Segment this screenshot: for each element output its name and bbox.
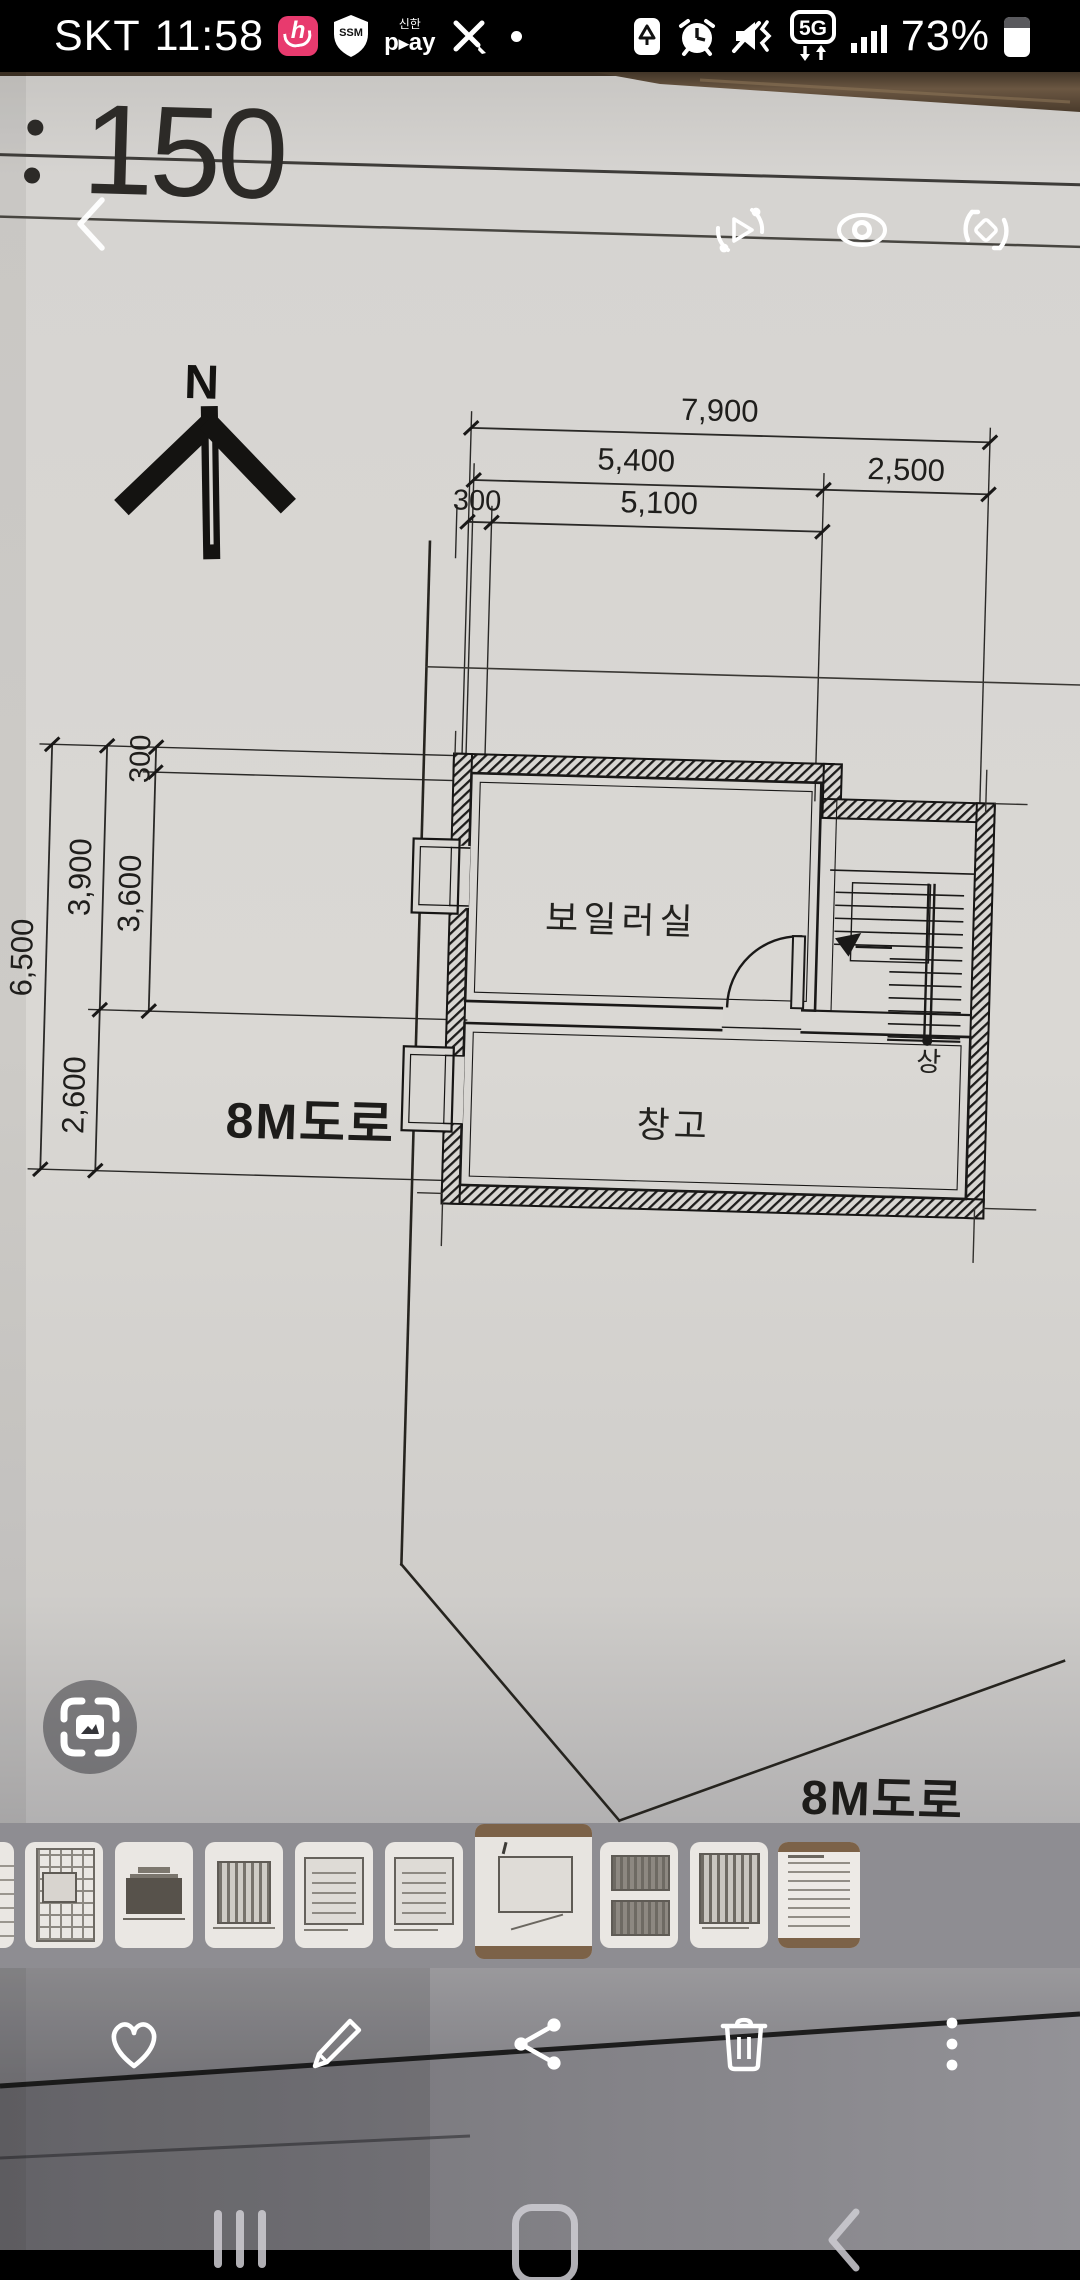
- thumbnail-sections[interactable]: [600, 1842, 678, 1948]
- thumbnail-sliver[interactable]: [0, 1842, 14, 1948]
- dim-300-left-label: 300: [124, 734, 157, 783]
- thumbnail-detail[interactable]: [25, 1842, 103, 1948]
- storage-room-label: 창고: [636, 1104, 711, 1147]
- svg-text:5G: 5G: [799, 17, 827, 40]
- gallery-photo-viewer-screen: 150 N: [0, 0, 1080, 2280]
- road-label-left: 8M도로: [225, 1092, 396, 1153]
- signal-bars-icon: [849, 16, 889, 56]
- dim-5400-label: 5,400: [597, 441, 676, 478]
- dim-5100-label: 5,100: [620, 484, 699, 521]
- window-lower-left: [402, 1046, 465, 1132]
- battery-saver-icon: [631, 14, 663, 58]
- dim-3900-label: 3,900: [61, 838, 98, 917]
- nav-home-button[interactable]: [512, 2204, 578, 2280]
- navigation-bar: [0, 2196, 1080, 2280]
- dim-2500-label: 2,500: [867, 451, 946, 488]
- share-button[interactable]: [508, 2014, 568, 2074]
- scan-image-icon: [52, 1689, 128, 1765]
- show-details-eye-button[interactable]: [834, 202, 890, 258]
- thumbnail-doc[interactable]: [778, 1842, 860, 1948]
- north-label: N: [184, 356, 220, 410]
- dim-7900-label: 7,900: [680, 392, 759, 429]
- action-bar: [0, 2014, 1080, 2084]
- image-scan-lens-button[interactable]: [43, 1680, 137, 1774]
- motion-photo-button[interactable]: [712, 202, 768, 258]
- ssm-shield-icon: SSM: [332, 14, 370, 58]
- window-upper-left: [412, 838, 471, 914]
- dim-2600-label: 2,600: [55, 1056, 92, 1135]
- boiler-room-label: 보일러실: [545, 897, 699, 942]
- notification-app-icon: h: [278, 16, 318, 56]
- road-label-bottom: 8M도로: [800, 1772, 964, 1830]
- nav-recents-button[interactable]: [214, 2210, 266, 2268]
- notification-dot-icon: [511, 31, 522, 42]
- shinhan-play-icon: 신한 p▶ay: [384, 18, 435, 55]
- status-bar: SKT 11:58 h SSM 신한 p▶ay: [0, 0, 1080, 72]
- stair-up-label: 상: [916, 1047, 942, 1078]
- rotate-button[interactable]: [958, 202, 1014, 258]
- carrier-label: SKT: [54, 12, 141, 61]
- dim-3600-label: 3,600: [111, 854, 148, 933]
- thumbnail-elevation[interactable]: [115, 1842, 193, 1948]
- clock-label: 11:58: [155, 12, 264, 61]
- edit-tools-notification-icon: [449, 16, 489, 56]
- thumbnail-current[interactable]: [475, 1824, 592, 1959]
- edit-pencil-button[interactable]: [306, 2014, 366, 2074]
- dim-300-top-label: 300: [452, 484, 501, 517]
- dim-6500-label: 6,500: [3, 918, 40, 997]
- svg-text:SSM: SSM: [339, 27, 363, 39]
- more-options-button[interactable]: [922, 2014, 982, 2074]
- battery-icon: [1002, 13, 1032, 59]
- battery-percent-label: 73%: [901, 12, 990, 61]
- favorite-heart-button[interactable]: [104, 2014, 164, 2074]
- thumbnail-strip[interactable]: [0, 1823, 1080, 1968]
- thumbnail-section[interactable]: [690, 1842, 768, 1948]
- thumbnail-plan[interactable]: [295, 1842, 373, 1948]
- nav-back-button[interactable]: [820, 2206, 864, 2274]
- thumbnail-framing[interactable]: [205, 1842, 283, 1948]
- network-5g-icon: 5G: [789, 10, 837, 62]
- delete-trash-button[interactable]: [714, 2014, 774, 2074]
- mute-vibrate-icon: [731, 14, 777, 58]
- thumbnail-plan[interactable]: [385, 1842, 463, 1948]
- alarm-icon: [675, 14, 719, 58]
